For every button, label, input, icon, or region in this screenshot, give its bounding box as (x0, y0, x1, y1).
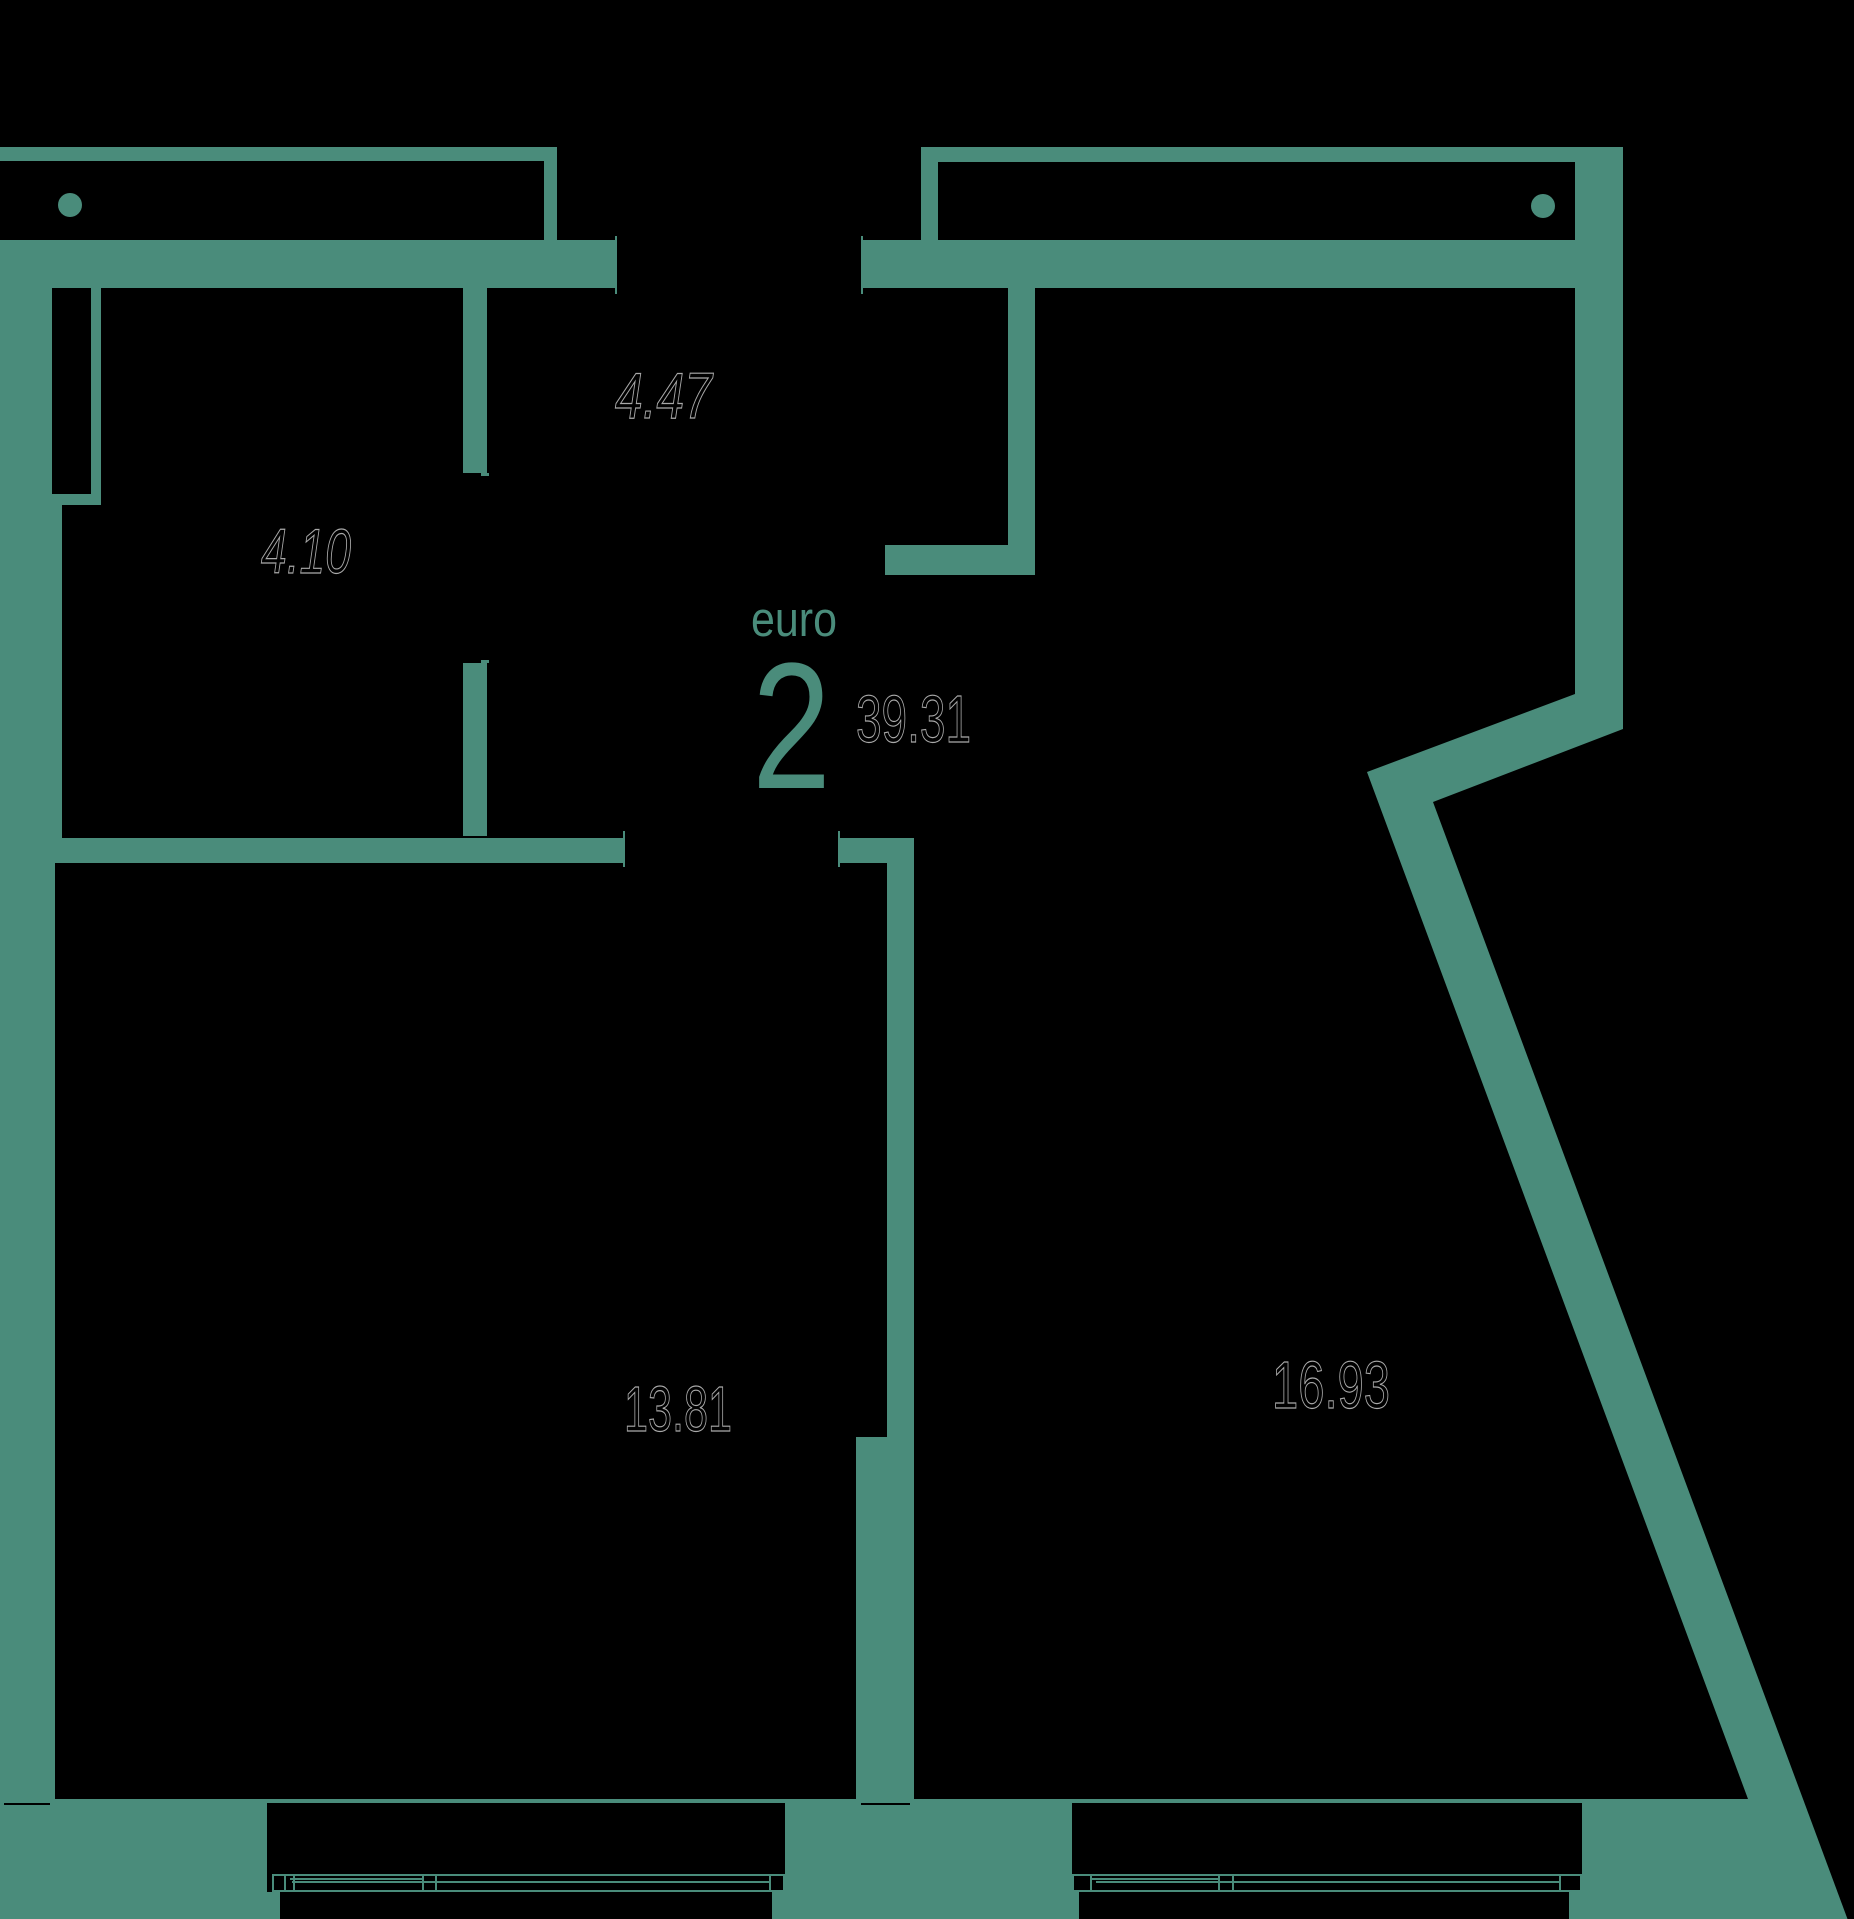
svg-text:16.93: 16.93 (1272, 1348, 1390, 1423)
svg-text:13.81: 13.81 (624, 1373, 732, 1445)
svg-text:2: 2 (752, 626, 831, 827)
svg-text:4.10: 4.10 (261, 517, 351, 587)
svg-text:39.31: 39.31 (856, 682, 971, 757)
svg-text:4.47: 4.47 (615, 359, 714, 432)
